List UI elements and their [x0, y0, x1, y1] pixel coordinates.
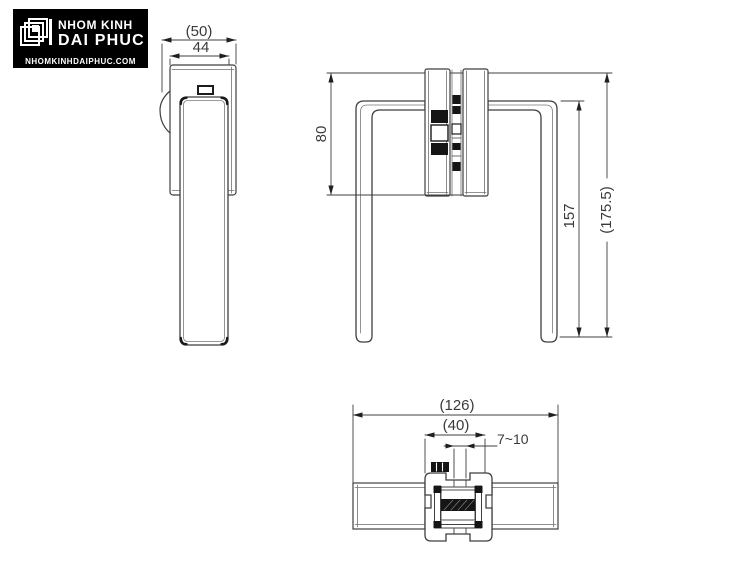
handle-technical-drawing: (50) 44 [0, 0, 756, 567]
front-dim-handle-height: 157 [561, 101, 584, 337]
arrow-left-icon [170, 53, 180, 58]
screw-hole-filled [431, 110, 448, 123]
dim-label-overall-length: (126) [439, 397, 474, 414]
dim-label-clamp-width: (40) [443, 417, 470, 434]
arrow-down-icon [328, 186, 333, 196]
gap-gasket-block [453, 162, 461, 171]
gasket-end-block [475, 521, 483, 528]
arrow-right-icon [446, 444, 455, 449]
side-grip [180, 97, 228, 345]
side-spring-clip [160, 91, 170, 133]
arrow-up-icon [328, 73, 333, 83]
arrow-down-icon [604, 328, 609, 338]
arrow-left-icon [425, 432, 435, 437]
arrow-left-icon [466, 444, 475, 449]
side-dim-plate-width: 44 [170, 39, 229, 65]
arrow-up-icon [576, 101, 581, 111]
dim-label-overall-width: (50) [186, 23, 213, 40]
top-dim-glass-thickness: 7~10 [444, 431, 529, 478]
gap-gasket-block [453, 95, 461, 104]
front-right-handle [488, 101, 557, 342]
gasket-end-block [434, 486, 442, 493]
top-knurled-screw [431, 462, 449, 472]
front-glass-gap [452, 70, 461, 196]
front-plate-screw-holes [431, 110, 448, 155]
arrow-right-icon [549, 412, 559, 417]
screw-hole-filled [431, 143, 448, 155]
dim-label-plate-height: 80 [313, 126, 330, 143]
arrow-up-icon [604, 73, 609, 83]
gap-gasket-block [452, 124, 461, 134]
front-view: 80 157 (175.5) [313, 69, 615, 342]
gap-gasket-block [453, 143, 461, 150]
dim-label-handle-height: 157 [561, 203, 578, 228]
gasket-end-block [434, 521, 442, 528]
dim-label-overall-height: (175.5) [598, 186, 615, 234]
top-left-arm [353, 483, 425, 529]
arrow-down-icon [576, 328, 581, 338]
arrow-right-icon [476, 432, 486, 437]
side-view: (50) 44 [160, 23, 236, 345]
top-view: (126) (40) 7~10 [353, 397, 558, 541]
screw-hole-open [431, 125, 448, 141]
top-right-arm [492, 483, 558, 529]
arrow-right-icon [227, 37, 237, 42]
side-spindle-hole [198, 86, 213, 94]
dim-label-plate-width: 44 [193, 39, 210, 56]
arrow-left-icon [162, 37, 172, 42]
gasket-end-block [475, 486, 483, 493]
gap-gasket-block [453, 106, 461, 114]
dim-label-glass-thickness: 7~10 [497, 431, 529, 447]
arrow-left-icon [353, 412, 363, 417]
front-left-handle [356, 101, 425, 342]
arrow-right-icon [220, 53, 230, 58]
technical-drawing-page: NHOM KINH DAI PHUC NHOMKINHDAIPHUC.COM (… [0, 0, 756, 567]
